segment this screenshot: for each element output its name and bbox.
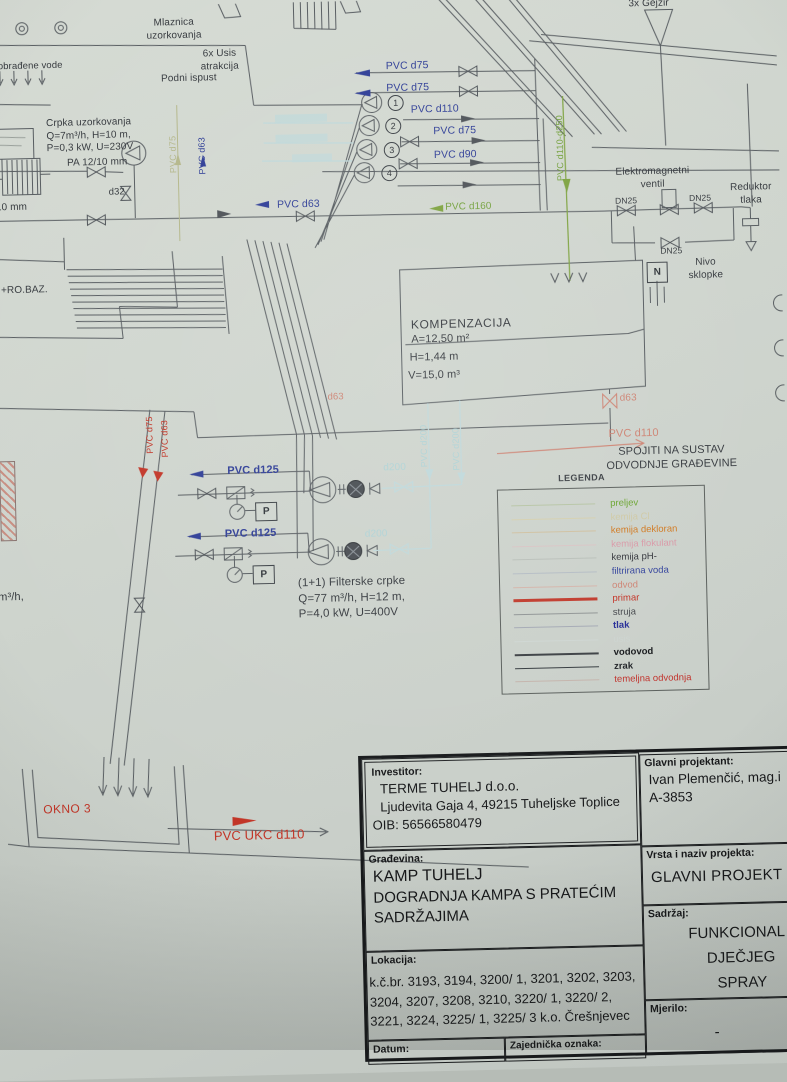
vrsta-value: GLAVNI PROJEKT	[651, 866, 787, 887]
zajednicka-label: Zajednička oznaka:	[510, 1037, 645, 1051]
label-pvc-d75-red-vertical: PVC d75	[144, 416, 155, 454]
label-kompenzacija: KOMPENZACIJA	[411, 315, 512, 332]
projektant-id: A-3853	[649, 787, 787, 806]
titleblock-investitor-inner: Investitor: TERME TUHELJ d.o.o. Ljudevit…	[364, 755, 638, 847]
hatched-wall	[0, 461, 17, 541]
vrsta-label: Vrsta i naziv projekta:	[646, 846, 787, 862]
label-nivo-sklopke: Nivo sklopke	[674, 256, 737, 282]
label-komp-h: H=1,44 m	[410, 351, 459, 366]
label-obradene-vode: a obrađene vode	[0, 60, 63, 74]
label-6x-usis: 6x Usis atrakcija	[184, 47, 255, 74]
label-line-pvc-d90: PVC d90	[434, 148, 477, 162]
lokacija-text: k.č.br. 3193, 3194, 3200/ 1, 3201, 3202,…	[369, 966, 642, 1031]
titleblock-datum-cell: Datum:	[368, 1038, 506, 1065]
titleblock-sadrzaj-cell: Sadržaj: FUNKCIONAL DJEČJEG SPRAY	[643, 902, 787, 1001]
datum-label: Datum:	[373, 1041, 504, 1056]
label-d200-b: d200	[365, 528, 388, 541]
label-m3h-fragment: m³/h,	[0, 591, 24, 605]
mjerilo-label: Mjerilo:	[650, 1000, 787, 1016]
gradevina-line2: DOGRADNJA KAMPA S PRATEĆIM	[373, 883, 641, 906]
legend-entry-label: odvod	[612, 579, 638, 591]
legend-entry-label: temeljna odvodnja	[614, 673, 691, 686]
label-d63-red: d63	[327, 391, 343, 403]
label-dn25-c: DN25	[660, 245, 682, 256]
label-line-pvc-d110: PVC d110	[411, 102, 459, 116]
projektant-name: Ivan Plemenčić, mag.i	[649, 769, 787, 788]
label-pvc-d125-a: PVC d125	[227, 464, 279, 479]
legend-line-sample	[512, 544, 596, 547]
legend-entry-label: kemija Cl	[610, 511, 649, 523]
legend-entry-label: usis	[613, 633, 630, 644]
legend-entry-label: kemija pH-	[611, 551, 657, 563]
legend-line-sample	[513, 598, 597, 602]
sadrzaj-label: Sadržaj:	[648, 905, 787, 921]
label-elektromagnetni-ventil: Elektromagnetni ventil	[597, 165, 708, 193]
label-mlaznica: Mlaznica uzorkovanja	[129, 16, 220, 43]
label-10mm: /10 mm	[0, 202, 27, 215]
investitor-address: Ljudevita Gaja 4, 49215 Tuheljske Toplic…	[380, 794, 630, 815]
legend-rows: preljevkemija Clkemija deklorankemija fl…	[498, 486, 709, 689]
gradevina-line3: SADRŽAJIMA	[374, 903, 642, 926]
label-okno-3: OKNO 3	[43, 801, 91, 817]
label-line-pvc-d75-3: PVC d75	[433, 124, 476, 138]
sadrzaj-line1: FUNKCIONAL	[688, 923, 787, 943]
label-pvc-d200-vertical-1: PVC d200	[418, 425, 429, 468]
titleblock-zajednicka-cell: Zajednička oznaka:	[505, 1034, 647, 1061]
legend-line-sample	[515, 680, 599, 683]
label-dn25-a: DN25	[615, 195, 637, 206]
legend-line-sample	[514, 626, 598, 629]
gradevina-line1: KAMP TUHELJ	[373, 862, 641, 886]
label-pvc-d75-vertical: PVC d75	[167, 136, 178, 174]
label-line-pvc-d75-2: PVC d75	[386, 81, 429, 95]
legend-entry-label: filtrirana voda	[612, 565, 669, 577]
legend-entry-label: vodovod	[614, 646, 654, 658]
legend-entry-label: primar	[612, 592, 639, 604]
titleblock-projektant-cell: Glavni projektant: Ivan Plemenčić, mag.i…	[639, 751, 787, 847]
legend-entry-label: preljev	[610, 498, 638, 510]
label-pvc-d63: PVC d63	[277, 198, 320, 212]
label-reduktor-tlaka: Reduktor tlaka	[721, 181, 782, 207]
legend-line-sample	[512, 517, 596, 520]
faint-detail-lines	[0, 137, 26, 147]
legend-entry-label: kemija dekloran	[611, 524, 678, 537]
legend-line-sample	[515, 652, 599, 656]
label-pvc-d110-d250-vertical: PVC d110-d250	[554, 115, 566, 181]
legend-entry-label: zrak	[614, 660, 633, 671]
label-pa-12-10: PA 12/10 mm	[67, 156, 128, 170]
legend-line-sample	[515, 666, 599, 669]
titleblock-lokacija-cell: Lokacija: k.č.br. 3193, 3194, 3200/ 1, 3…	[366, 945, 646, 1041]
legend-entry-label: kemija flokulant	[611, 537, 677, 550]
legend-line-sample	[512, 558, 596, 561]
sadrzaj-line3: SPRAY	[717, 973, 787, 992]
n-box: N	[647, 262, 668, 283]
titleblock-investitor-cell: Investitor: TERME TUHELJ d.o.o. Ljudevit…	[361, 752, 641, 851]
titleblock-mjerilo-cell: Mjerilo: -	[645, 997, 787, 1056]
label-pvc-d160: PVC d160	[445, 201, 492, 215]
legend-line-sample	[513, 585, 597, 588]
label-3x-gejzir: 3x Gejzir	[628, 0, 669, 11]
investitor-oib: OIB: 56566580479	[373, 812, 631, 833]
photographed-drawing: a obrađene vode Mlaznica uzorkovanja 6x …	[0, 0, 787, 1082]
label-pvc-d125-b: PVC d125	[225, 527, 277, 542]
mjerilo-value: -	[714, 1022, 787, 1041]
label-pvc-d63-red-vertical: PVC d63	[159, 420, 170, 458]
filter-icons	[343, 480, 366, 559]
label-pvc-d110-odvod: PVC d110	[608, 427, 658, 442]
label-pvc-d200-vertical-2: PVC d200	[450, 428, 461, 471]
sadrzaj-line2: DJEČJEG	[707, 948, 787, 967]
label-pvc-d63-vertical: PVC d63	[196, 137, 207, 175]
label-pvc-ukc-d110: PVC UKC d110	[214, 826, 305, 844]
legend-box: preljevkemija Clkemija deklorankemija fl…	[497, 485, 710, 695]
label-spojiti-na-sustav: SPOJITI NA SUSTAV ODVODNJE GRAĐEVINE	[579, 442, 765, 474]
legend-line-sample	[511, 504, 595, 507]
titleblock-vrsta-cell: Vrsta i naziv projekta: GLAVNI PROJEKT	[641, 843, 787, 906]
label-komp-a: A=12,50 m²	[411, 332, 469, 347]
label-ro-baz: +RO.BAZ.	[1, 284, 48, 298]
projektant-label: Glavni projektant:	[644, 754, 787, 770]
lokacija-label: Lokacija:	[371, 948, 643, 966]
label-d32: d32	[109, 186, 125, 198]
p-box-b: P	[253, 565, 275, 585]
label-crpka-uzorkovanja: Crpka uzorkovanja Q=7m³/h, H=10 m, P=0,3…	[46, 116, 134, 156]
label-komp-v: V=15,0 m³	[408, 369, 460, 384]
legend-line-sample	[514, 639, 598, 642]
label-dn25-b: DN25	[689, 193, 711, 204]
label-d63-tank: d63	[620, 392, 637, 405]
legend-line-sample	[513, 571, 597, 574]
drawing-sheet: a obrađene vode Mlaznica uzorkovanja 6x …	[0, 0, 787, 1059]
legend-entry-label: tlak	[613, 620, 630, 631]
investitor-name: TERME TUHELJ d.o.o.	[380, 776, 630, 797]
p-box-a: P	[255, 502, 277, 522]
legend-line-sample	[512, 531, 596, 534]
legend-line-sample	[514, 612, 598, 615]
label-line-pvc-d75-1: PVC d75	[386, 59, 429, 73]
title-block: Investitor: TERME TUHELJ d.o.o. Ljudevit…	[358, 746, 787, 1062]
titleblock-gradevina-cell: Građevina: KAMP TUHELJ DOGRADNJA KAMPA S…	[363, 844, 643, 952]
legend-entry-label: struja	[613, 606, 636, 618]
label-filterske-crpke: (1+1) Filterske crpke Q=77 m³/h, H=12 m,…	[298, 574, 406, 623]
label-d200-a: d200	[383, 462, 406, 475]
label-podni-ispust: Podni ispust	[161, 72, 217, 86]
